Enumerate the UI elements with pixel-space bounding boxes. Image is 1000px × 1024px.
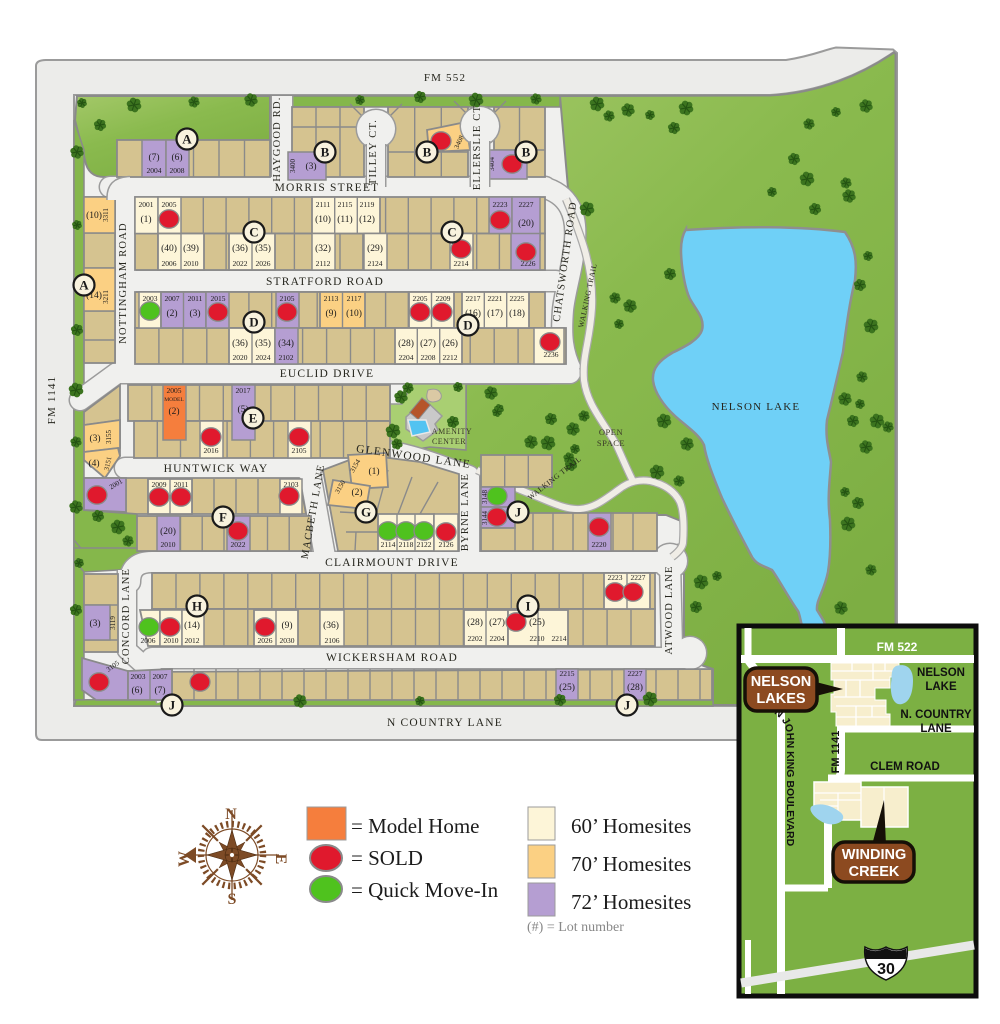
svg-text:2004: 2004	[147, 166, 162, 175]
svg-text:2026: 2026	[258, 636, 273, 645]
svg-text:TILLEY CT.: TILLEY CT.	[368, 119, 379, 185]
svg-text:LAKE: LAKE	[925, 681, 957, 693]
svg-text:2010: 2010	[184, 259, 199, 268]
svg-text:= SOLD: = SOLD	[351, 846, 423, 870]
svg-text:N: N	[225, 806, 237, 823]
svg-text:ATWOOD LANE: ATWOOD LANE	[664, 565, 675, 654]
svg-text:NOTTINGHAM ROAD: NOTTINGHAM ROAD	[118, 222, 129, 344]
svg-text:(35): (35)	[255, 338, 271, 349]
svg-text:E: E	[249, 411, 258, 426]
svg-text:NELSON: NELSON	[751, 674, 811, 690]
svg-text:2008: 2008	[170, 166, 185, 175]
svg-text:(9): (9)	[325, 308, 336, 319]
svg-text:2030: 2030	[280, 636, 295, 645]
svg-text:3155: 3155	[105, 430, 113, 445]
svg-text:(14): (14)	[184, 620, 200, 631]
svg-text:HAYGOOD RD.: HAYGOOD RD.	[272, 96, 283, 181]
svg-text:2111: 2111	[316, 200, 331, 209]
svg-text:2006: 2006	[162, 259, 177, 268]
svg-text:MODEL: MODEL	[164, 397, 184, 403]
svg-text:I: I	[525, 599, 530, 614]
svg-text:2223: 2223	[493, 200, 508, 209]
svg-text:2020: 2020	[233, 353, 248, 362]
svg-text:2001: 2001	[139, 200, 154, 209]
svg-text:2205: 2205	[413, 294, 428, 303]
svg-text:2227: 2227	[519, 200, 534, 209]
svg-text:FM 1141: FM 1141	[46, 376, 58, 425]
svg-text:2106: 2106	[325, 636, 340, 645]
svg-text:J: J	[624, 698, 631, 713]
svg-text:= Quick Move-In: = Quick Move-In	[351, 878, 499, 902]
svg-text:CENTER: CENTER	[432, 437, 466, 446]
svg-text:2117: 2117	[347, 294, 362, 303]
svg-text:(36): (36)	[232, 243, 248, 254]
svg-text:STRATFORD ROAD: STRATFORD ROAD	[266, 276, 384, 288]
svg-text:(28): (28)	[627, 682, 643, 693]
svg-text:FM 552: FM 552	[424, 72, 466, 84]
svg-text:F: F	[219, 510, 227, 525]
svg-text:2026: 2026	[256, 259, 271, 268]
svg-text:2119: 2119	[360, 200, 375, 209]
svg-text:(32): (32)	[315, 243, 331, 254]
svg-text:A: A	[182, 132, 192, 147]
svg-text:LAKES: LAKES	[756, 691, 805, 707]
svg-text:(2): (2)	[168, 406, 179, 417]
svg-text:2113: 2113	[324, 294, 339, 303]
svg-text:BYRNE LANE: BYRNE LANE	[460, 473, 471, 551]
svg-text:(26): (26)	[442, 338, 458, 349]
svg-text:2024: 2024	[256, 353, 271, 362]
svg-text:MORRIS STREET: MORRIS STREET	[275, 182, 380, 194]
svg-text:2204: 2204	[399, 353, 414, 362]
svg-text:B: B	[423, 145, 432, 160]
svg-text:C: C	[249, 225, 258, 240]
svg-text:SPACE: SPACE	[597, 438, 625, 448]
svg-text:H: H	[192, 599, 202, 614]
svg-text:2227: 2227	[631, 573, 646, 582]
svg-text:(20): (20)	[160, 526, 176, 537]
svg-text:2214: 2214	[454, 259, 469, 268]
svg-text:CLAIRMOUNT DRIVE: CLAIRMOUNT DRIVE	[325, 557, 459, 569]
svg-text:2016: 2016	[204, 446, 219, 455]
svg-text:72’ Homesites: 72’ Homesites	[571, 890, 691, 914]
svg-text:2209: 2209	[436, 294, 451, 303]
svg-text:(9): (9)	[281, 620, 292, 631]
svg-text:(6): (6)	[171, 152, 182, 163]
svg-text:2112: 2112	[316, 259, 331, 268]
svg-text:(12): (12)	[359, 214, 375, 225]
svg-text:(3): (3)	[89, 618, 100, 629]
svg-text:(36): (36)	[323, 620, 339, 631]
svg-text:(17): (17)	[487, 308, 503, 319]
svg-text:(1): (1)	[368, 466, 379, 477]
svg-text:2227: 2227	[628, 669, 643, 678]
svg-text:2114: 2114	[381, 540, 396, 549]
svg-text:2005: 2005	[162, 200, 177, 209]
svg-text:2105: 2105	[280, 294, 295, 303]
svg-text:WICKERSHAM ROAD: WICKERSHAM ROAD	[326, 652, 458, 664]
svg-text:2011: 2011	[188, 294, 203, 303]
svg-text:(35): (35)	[255, 243, 271, 254]
svg-text:70’ Homesites: 70’ Homesites	[571, 852, 691, 876]
svg-text:2007: 2007	[165, 294, 180, 303]
svg-text:(4): (4)	[88, 458, 99, 469]
svg-text:(25): (25)	[529, 617, 545, 628]
svg-text:2010: 2010	[161, 540, 176, 549]
svg-text:2223: 2223	[608, 573, 623, 582]
svg-text:3211: 3211	[102, 290, 110, 304]
svg-text:AMENITY: AMENITY	[432, 427, 472, 436]
svg-text:FM 1141: FM 1141	[830, 731, 842, 774]
svg-text:3400: 3400	[289, 159, 297, 174]
svg-text:2221: 2221	[488, 294, 503, 303]
svg-text:(34): (34)	[278, 338, 294, 349]
svg-text:(39): (39)	[183, 243, 199, 254]
svg-text:2003: 2003	[131, 672, 146, 681]
svg-text:(10): (10)	[86, 210, 102, 221]
svg-text:= Model Home: = Model Home	[351, 814, 480, 838]
svg-text:HUNTWICK WAY: HUNTWICK WAY	[164, 463, 269, 475]
svg-text:(2): (2)	[351, 487, 362, 498]
svg-text:CONCORD LANE: CONCORD LANE	[121, 568, 132, 664]
svg-text:(7): (7)	[154, 685, 165, 696]
svg-text:(28): (28)	[398, 338, 414, 349]
svg-text:CREEK: CREEK	[849, 864, 900, 880]
svg-text:NELSON LAKE: NELSON LAKE	[712, 401, 801, 413]
svg-text:2005: 2005	[167, 386, 182, 395]
svg-text:2215: 2215	[560, 669, 575, 678]
svg-text:N. COUNTRY: N. COUNTRY	[900, 709, 971, 721]
svg-text:(10): (10)	[346, 308, 362, 319]
svg-text:2022: 2022	[231, 540, 246, 549]
svg-text:(29): (29)	[367, 243, 383, 254]
svg-text:2202: 2202	[468, 634, 483, 643]
svg-text:(10): (10)	[315, 214, 331, 225]
svg-text:2208: 2208	[421, 353, 436, 362]
svg-text:3311: 3311	[102, 208, 110, 222]
svg-text:2212: 2212	[443, 353, 458, 362]
svg-text:G: G	[361, 505, 371, 520]
svg-text:2102: 2102	[279, 353, 294, 362]
svg-text:60’ Homesites: 60’ Homesites	[571, 814, 691, 838]
svg-text:2105: 2105	[292, 446, 307, 455]
svg-text:2015: 2015	[211, 294, 226, 303]
svg-text:2010: 2010	[164, 636, 179, 645]
svg-text:(36): (36)	[232, 338, 248, 349]
svg-text:D: D	[463, 318, 472, 333]
svg-text:N COUNTRY LANE: N COUNTRY LANE	[387, 717, 503, 729]
svg-text:WINDING: WINDING	[842, 847, 906, 863]
svg-text:(3): (3)	[89, 433, 100, 444]
svg-text:30: 30	[877, 961, 895, 978]
svg-text:(20): (20)	[518, 218, 534, 229]
svg-text:D: D	[249, 315, 258, 330]
svg-text:ELLERSLIE CT.: ELLERSLIE CT.	[472, 102, 483, 190]
svg-text:E: E	[272, 854, 289, 865]
svg-text:2115: 2115	[338, 200, 353, 209]
svg-text:(7): (7)	[148, 152, 159, 163]
svg-text:2007: 2007	[153, 672, 168, 681]
svg-text:(18): (18)	[509, 308, 525, 319]
svg-text:3119: 3119	[109, 616, 117, 630]
svg-text:(2): (2)	[166, 308, 177, 319]
svg-text:J: J	[515, 505, 522, 520]
svg-text:2225: 2225	[510, 294, 525, 303]
svg-text:(27): (27)	[489, 617, 505, 628]
svg-text:(6): (6)	[131, 685, 142, 696]
svg-text:C: C	[447, 225, 456, 240]
svg-text:(1): (1)	[140, 214, 151, 225]
svg-text:2006: 2006	[141, 636, 156, 645]
svg-text:NELSON: NELSON	[917, 667, 965, 679]
svg-text:(3): (3)	[305, 161, 316, 172]
svg-text:OPEN: OPEN	[599, 427, 623, 437]
svg-text:2012: 2012	[185, 636, 200, 645]
svg-text:2204: 2204	[490, 634, 505, 643]
svg-text:2217: 2217	[466, 294, 481, 303]
svg-text:(25): (25)	[559, 682, 575, 693]
svg-text:2124: 2124	[368, 259, 383, 268]
svg-text:(27): (27)	[420, 338, 436, 349]
svg-text:B: B	[522, 145, 531, 160]
svg-text:(28): (28)	[467, 617, 483, 628]
svg-text:2220: 2220	[592, 540, 607, 549]
svg-text:2210: 2210	[530, 634, 545, 643]
svg-text:CLEM ROAD: CLEM ROAD	[870, 761, 940, 773]
svg-text:(#) = Lot number: (#) = Lot number	[527, 920, 624, 935]
svg-text:J: J	[169, 698, 176, 713]
svg-text:EUCLID DRIVE: EUCLID DRIVE	[280, 368, 375, 380]
svg-text:2017: 2017	[236, 386, 251, 395]
svg-text:W: W	[176, 851, 193, 867]
svg-text:2118: 2118	[399, 540, 414, 549]
svg-text:(11): (11)	[337, 214, 352, 225]
svg-text:(3): (3)	[189, 308, 200, 319]
svg-text:LANE: LANE	[920, 723, 952, 735]
svg-text:B: B	[321, 145, 330, 160]
svg-text:FM 522: FM 522	[877, 640, 918, 654]
svg-text:2022: 2022	[233, 259, 248, 268]
svg-text:S: S	[228, 891, 237, 908]
svg-text:2214: 2214	[552, 634, 567, 643]
svg-text:A: A	[79, 278, 89, 293]
svg-text:(40): (40)	[161, 243, 177, 254]
svg-text:2122: 2122	[417, 540, 432, 549]
